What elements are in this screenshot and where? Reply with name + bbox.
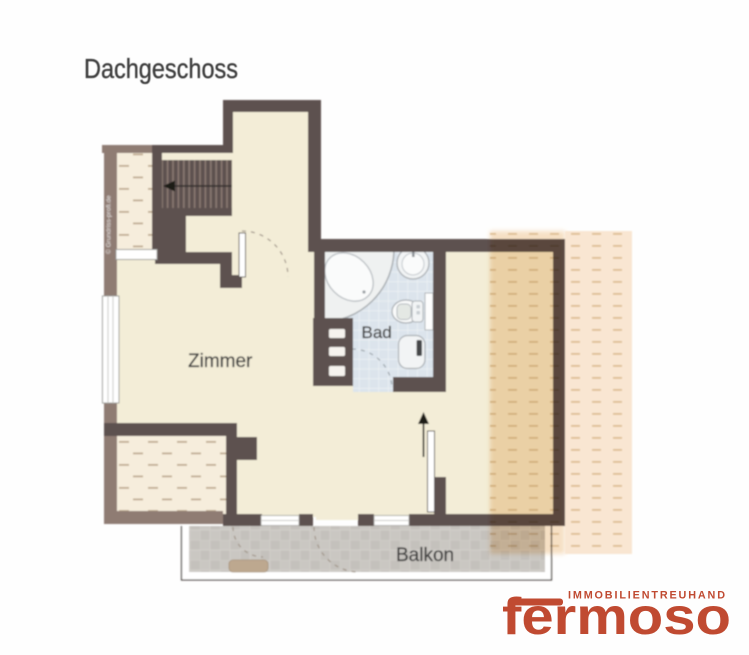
svg-text:© Grundriss-profi.de: © Grundriss-profi.de <box>105 195 113 254</box>
svg-text:Zimmer: Zimmer <box>188 351 253 372</box>
svg-text:Dachgeschoss: Dachgeschoss <box>84 53 238 84</box>
svg-text:Bad: Bad <box>362 323 392 342</box>
svg-text:fermoso: fermoso <box>502 588 731 646</box>
svg-text:Balkon: Balkon <box>396 545 454 566</box>
